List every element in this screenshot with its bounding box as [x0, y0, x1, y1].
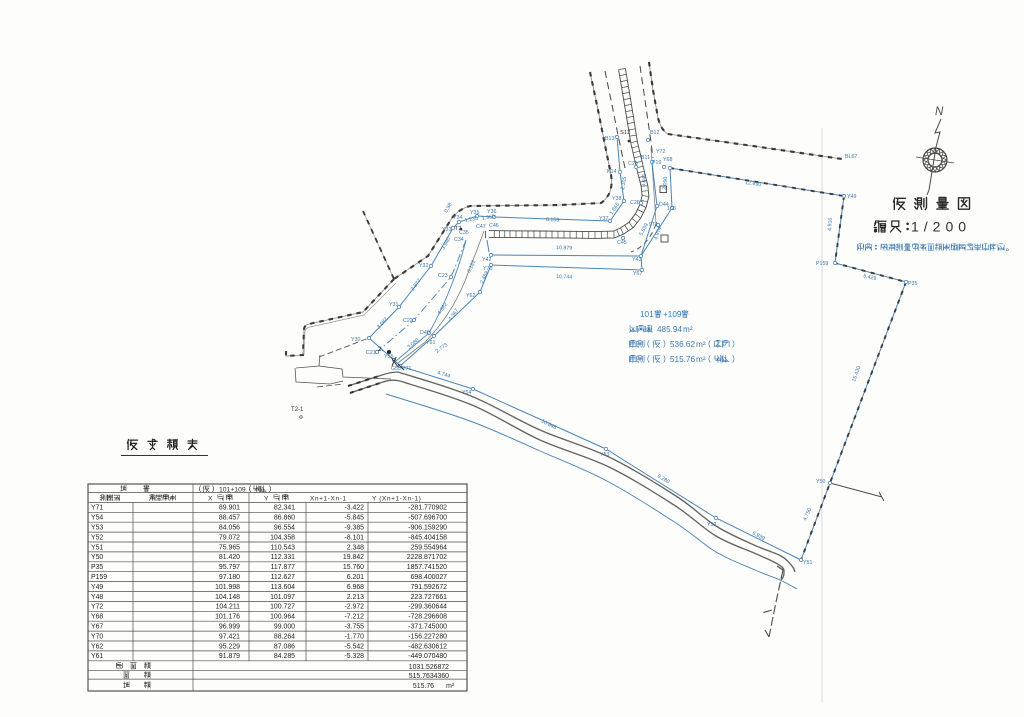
svg-text:m²: m² [446, 682, 455, 690]
svg-text:101.176: 101.176 [215, 614, 240, 621]
svg-text:84.285: 84.285 [274, 653, 295, 660]
svg-text:Y67: Y67 [91, 624, 103, 631]
svg-text:112.627: 112.627 [271, 574, 296, 581]
svg-text:96.999: 96.999 [219, 624, 240, 631]
svg-text:T2: T2 [455, 226, 461, 232]
svg-text:-8.101: -8.101 [344, 534, 364, 541]
svg-text:Y49: Y49 [91, 584, 103, 591]
svg-text:100.727: 100.727 [270, 604, 295, 611]
svg-text:Y54: Y54 [91, 515, 103, 522]
svg-text:C21: C21 [366, 350, 376, 356]
svg-text:88.264: 88.264 [274, 633, 295, 640]
svg-text:B11: B11 [641, 155, 650, 161]
svg-text:Y: Y [264, 495, 269, 502]
svg-text:Y31: Y31 [389, 302, 398, 308]
svg-text:-281.770902: -281.770902 [408, 505, 447, 512]
svg-text:K14: K14 [607, 169, 616, 175]
svg-text:6.201: 6.201 [347, 574, 364, 581]
svg-text:-156.227280: -156.227280 [408, 633, 447, 640]
svg-text:Y48: Y48 [91, 594, 103, 601]
svg-text:223.727661: 223.727661 [411, 594, 448, 601]
svg-text:P159: P159 [816, 261, 828, 267]
svg-text:1031.526872: 1031.526872 [409, 664, 449, 671]
svg-text:88.457: 88.457 [219, 515, 240, 522]
svg-text:Y72: Y72 [656, 149, 665, 155]
svg-text:10.744: 10.744 [556, 274, 572, 281]
svg-text:Y51: Y51 [803, 560, 812, 566]
svg-text:B12: B12 [650, 130, 659, 136]
svg-text:79.072: 79.072 [219, 534, 240, 541]
svg-text:Y68: Y68 [91, 614, 103, 621]
svg-text:C29: C29 [628, 161, 638, 167]
svg-text:101.998: 101.998 [215, 584, 240, 591]
svg-text:Y61: Y61 [426, 340, 435, 346]
svg-text:2.213: 2.213 [347, 594, 364, 601]
svg-text:168: 168 [667, 206, 676, 212]
svg-text:4.916: 4.916 [827, 217, 834, 231]
svg-text:Y33: Y33 [442, 227, 451, 233]
svg-text:Y62: Y62 [91, 643, 103, 650]
svg-text:104.358: 104.358 [270, 534, 295, 541]
svg-text:1857.741520: 1857.741520 [407, 564, 447, 571]
svg-text:99.000: 99.000 [274, 624, 295, 631]
svg-text:Y61: Y61 [91, 653, 103, 660]
svg-text:m²: m² [683, 325, 693, 334]
svg-text:C34: C34 [454, 237, 464, 243]
svg-text:Y (Xn+1-Xn-1): Y (Xn+1-Xn-1) [372, 495, 421, 502]
svg-text:791.592672: 791.592672 [411, 584, 448, 591]
svg-text:BL67: BL67 [845, 154, 857, 160]
svg-text:2.348: 2.348 [347, 544, 364, 551]
svg-text:104.211: 104.211 [216, 604, 241, 611]
svg-text:86.860: 86.860 [274, 515, 295, 522]
svg-text:112.331: 112.331 [271, 554, 296, 561]
svg-text:81.420: 81.420 [219, 554, 240, 561]
svg-text:+109: +109 [663, 310, 682, 319]
svg-text:Y49: Y49 [847, 194, 856, 200]
svg-text:Y43: Y43 [632, 257, 641, 263]
svg-text:485.94: 485.94 [657, 325, 682, 334]
svg-text:19.842: 19.842 [343, 554, 364, 561]
svg-text:1/200: 1/200 [911, 219, 971, 235]
svg-text:96.554: 96.554 [274, 525, 295, 532]
svg-text:-507.696700: -507.696700 [408, 515, 447, 522]
svg-text:C28: C28 [630, 200, 640, 206]
svg-text:Y38: Y38 [612, 196, 621, 202]
svg-text:S12: S12 [620, 130, 630, 136]
svg-text:P159: P159 [91, 574, 107, 581]
svg-text:-482.630612: -482.630612 [408, 643, 447, 650]
svg-text:515.76: 515.76 [670, 355, 695, 364]
svg-text:8.159: 8.159 [546, 217, 560, 223]
svg-text:Y50: Y50 [816, 479, 825, 485]
svg-text:2.: 2. [378, 346, 384, 353]
svg-text:104.148: 104.148 [215, 594, 240, 601]
svg-text:84.056: 84.056 [219, 525, 240, 532]
svg-text:m²: m² [696, 355, 706, 364]
svg-text:10.879: 10.879 [556, 245, 572, 252]
svg-text:101+109: 101+109 [219, 486, 246, 493]
svg-text:95.797: 95.797 [219, 564, 240, 571]
svg-text:Y70: Y70 [483, 266, 492, 272]
svg-text:97.180: 97.180 [219, 574, 240, 581]
svg-text:259.554964: 259.554964 [411, 544, 448, 551]
svg-text:Y72: Y72 [91, 604, 103, 611]
svg-text:Y35: Y35 [470, 210, 479, 216]
svg-text:Y67: Y67 [633, 271, 642, 277]
svg-text:515.7634360: 515.7634360 [409, 673, 449, 680]
svg-text:-906.159290: -906.159290 [408, 525, 447, 532]
svg-text:N: N [935, 106, 944, 118]
svg-text:113.604: 113.604 [271, 584, 296, 591]
svg-text:Y36: Y36 [487, 209, 496, 215]
svg-text:-1.770: -1.770 [344, 633, 364, 640]
svg-text:698.400027: 698.400027 [411, 574, 448, 581]
svg-text:Y55: Y55 [384, 354, 393, 360]
svg-text:Y42: Y42 [482, 257, 491, 263]
svg-text:P35: P35 [908, 281, 917, 287]
svg-text:101.097: 101.097 [270, 594, 295, 601]
svg-text:-3.422: -3.422 [344, 505, 364, 512]
svg-text:536.62: 536.62 [670, 340, 695, 349]
svg-text:D40: D40 [420, 330, 430, 336]
svg-text:C22: C22 [403, 318, 413, 324]
svg-text:101: 101 [640, 310, 654, 319]
svg-text:-299.360644: -299.360644 [408, 604, 447, 611]
svg-text:100.964: 100.964 [270, 614, 295, 621]
svg-text:Y34: Y34 [453, 215, 462, 221]
svg-text:110.543: 110.543 [271, 544, 296, 551]
svg-text:-3.755: -3.755 [344, 624, 364, 631]
svg-text:-845.404158: -845.404158 [408, 534, 447, 541]
svg-text:-2.972: -2.972 [344, 604, 364, 611]
svg-text:-9.385: -9.385 [344, 525, 364, 532]
svg-text:Y32: Y32 [419, 263, 428, 269]
svg-text:C45: C45 [617, 240, 627, 246]
svg-text:T2-1: T2-1 [291, 407, 304, 413]
svg-text:2228.871702: 2228.871702 [407, 554, 447, 561]
svg-text:-5.542: -5.542 [344, 643, 364, 650]
svg-text:-449.070480: -449.070480 [408, 653, 447, 660]
svg-text:P19: P19 [652, 160, 661, 166]
svg-text:3.090: 3.090 [662, 176, 669, 190]
svg-text:Y50: Y50 [91, 554, 103, 561]
svg-text:Xn+1-Xn-1: Xn+1-Xn-1 [310, 495, 347, 502]
svg-text:C23: C23 [438, 273, 448, 279]
svg-text:P35: P35 [91, 564, 103, 571]
svg-text:515.76: 515.76 [413, 683, 434, 690]
svg-text:C46: C46 [489, 223, 499, 229]
svg-text:89.901: 89.901 [219, 505, 240, 512]
svg-text:Y70: Y70 [91, 633, 103, 640]
svg-text:-371.745000: -371.745000 [408, 624, 447, 631]
svg-text:9T1: 9T1 [649, 222, 658, 228]
svg-text:Y68: Y68 [663, 157, 672, 163]
svg-text:95.229: 95.229 [219, 643, 240, 650]
svg-text:Y37: Y37 [599, 216, 608, 222]
svg-text:3.040: 3.040 [641, 173, 648, 187]
svg-text:75.965: 75.965 [219, 544, 240, 551]
svg-text:-7.212: -7.212 [344, 614, 364, 621]
svg-text:6.968: 6.968 [347, 584, 364, 591]
svg-text:m²: m² [696, 340, 706, 349]
svg-text:G55 Y71: G55 Y71 [391, 366, 411, 372]
svg-text:Y30: Y30 [351, 337, 360, 343]
svg-text:Y51: Y51 [91, 544, 103, 551]
svg-text:Y52: Y52 [91, 534, 103, 541]
svg-text:Y53: Y53 [91, 525, 103, 532]
svg-text:82.341: 82.341 [274, 505, 295, 512]
svg-text:117.877: 117.877 [271, 564, 296, 571]
svg-text:B13: B13 [605, 136, 614, 142]
svg-text:-5.845: -5.845 [344, 515, 364, 522]
svg-text:87.086: 87.086 [274, 643, 295, 650]
svg-text:-5.328: -5.328 [344, 653, 364, 660]
svg-text:Y52: Y52 [707, 522, 716, 528]
svg-text:Y62: Y62 [466, 293, 475, 299]
svg-text:Y53: Y53 [600, 452, 609, 458]
svg-text:97.421: 97.421 [219, 633, 240, 640]
svg-text:91.879: 91.879 [219, 653, 240, 660]
svg-text:X: X [208, 495, 213, 502]
svg-text:-728.296608: -728.296608 [408, 614, 447, 621]
svg-text:Y54: Y54 [462, 390, 471, 396]
svg-text:Y71: Y71 [91, 505, 103, 512]
svg-text:C47: C47 [476, 224, 486, 230]
svg-text:15.760: 15.760 [343, 564, 364, 571]
